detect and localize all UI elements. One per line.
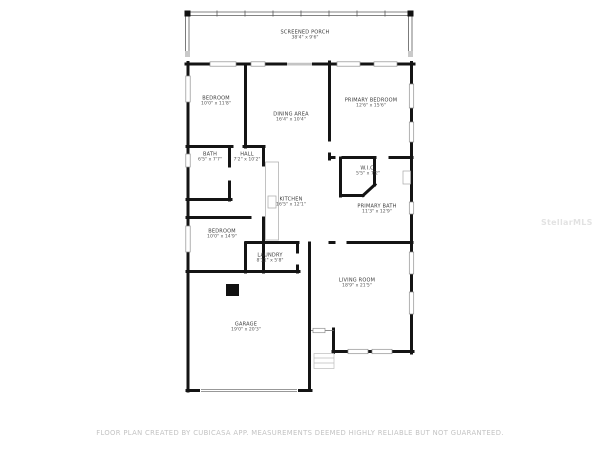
porch-door [287,62,312,67]
toilet [403,171,411,184]
room-dims: 12'6" x 15'6" [345,103,398,109]
room-label-screened-porch: SCREENED PORCH 38'4" x 9'6" [280,29,329,41]
mls-watermark: StellarMLS [541,218,593,227]
kitchen-sink [268,196,276,208]
room-label-primary-bedroom: PRIMARY BEDROOM 12'6" x 15'6" [345,97,398,109]
room-dims: 38'4" x 9'6" [280,35,329,41]
room-dims: 16'5" x 12'1" [276,202,306,208]
room-dims: 7'2" x 10'2" [233,157,260,163]
floorplan-drawing [0,0,600,450]
room-label-dining-area: DINING AREA 16'4" x 10'4" [273,111,308,123]
disclaimer-text: FLOOR PLAN CREATED BY CUBICASA APP. MEAS… [0,429,600,437]
front-entry [311,328,334,368]
room-label-living-room: LIVING ROOM 18'9" x 21'5" [339,277,375,289]
room-label-wic: W.I.C. 5'5" x 7'2" [356,165,380,177]
room-dims: 19'0" x 20'3" [231,327,261,333]
room-dims: 5'5" x 7'2" [356,171,380,177]
room-dims: 16'4" x 10'4" [273,117,308,123]
room-dims: 10'0" x 14'9" [207,234,237,240]
room-label-bath: BATH 6'5" x 7'7" [198,151,222,163]
room-dims: 10'0" x 11'8" [201,101,231,107]
room-dims: 6'5" x 7'7" [198,157,222,163]
room-label-bedroom-2: BEDROOM 10'0" x 14'9" [207,228,237,240]
room-dims: 11'3" x 12'9" [357,209,396,215]
room-label-kitchen: KITCHEN 16'5" x 12'1" [276,196,306,208]
water-heater [226,284,239,296]
floor-plan-image: SCREENED PORCH 38'4" x 9'6" BEDROOM 10'0… [0,0,600,450]
room-label-hall: HALL 7'2" x 10'2" [233,151,260,163]
room-label-garage: GARAGE 19'0" x 20'3" [231,321,261,333]
room-label-bedroom-1: BEDROOM 10'0" x 11'8" [201,95,231,107]
room-dims: 8'11" x 5'8" [256,258,283,264]
garage-door [200,388,298,393]
room-dims: 18'9" x 21'5" [339,283,375,289]
fixtures [226,162,411,296]
entry-steps [314,354,334,369]
room-label-laundry: LAUNDRY 8'11" x 5'8" [256,252,283,264]
room-label-primary-bath: PRIMARY BATH 11'3" x 12'9" [357,203,396,215]
